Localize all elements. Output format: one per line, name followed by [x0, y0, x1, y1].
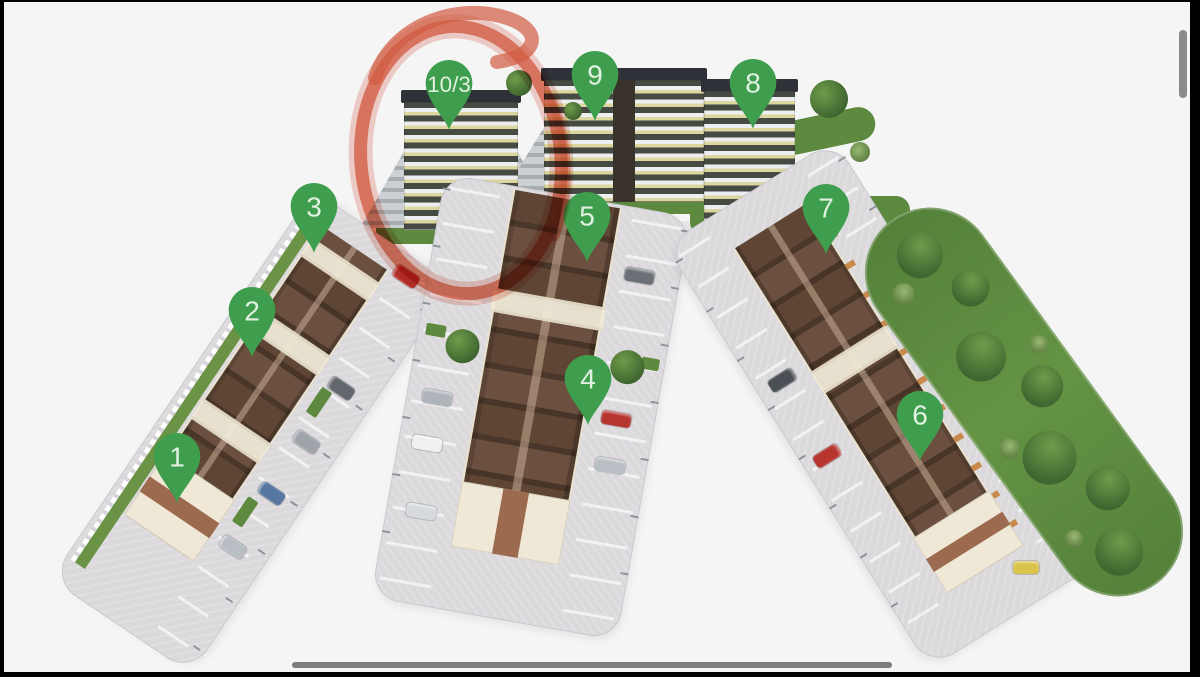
bush	[1026, 332, 1051, 357]
tree	[888, 223, 952, 287]
tree	[506, 70, 532, 96]
video-frame: 1 2 3 4 5 6 7 8 9 10/3	[0, 0, 1200, 677]
svg-text:8: 8	[745, 68, 761, 99]
map-pin-7[interactable]: 7	[798, 182, 854, 257]
tree	[1077, 458, 1138, 519]
svg-text:9: 9	[587, 60, 603, 91]
tree	[1086, 518, 1153, 585]
brick-column	[492, 488, 529, 558]
bush	[850, 142, 870, 162]
tree	[1012, 420, 1087, 495]
svg-text:5: 5	[579, 201, 595, 232]
svg-text:7: 7	[818, 193, 834, 224]
terrace-structure	[360, 148, 406, 228]
tree	[1013, 357, 1072, 416]
svg-text:3: 3	[306, 192, 322, 223]
map-pin-9[interactable]: 9	[567, 49, 623, 124]
svg-text:1: 1	[169, 442, 185, 473]
bush	[1061, 526, 1086, 551]
map-pin-5[interactable]: 5	[559, 190, 615, 265]
site-plan: 1 2 3 4 5 6 7 8 9 10/3	[4, 2, 1190, 672]
bush	[996, 434, 1024, 462]
map-pin-10-3[interactable]: 10/3	[421, 58, 477, 133]
map-pin-4[interactable]: 4	[560, 353, 616, 428]
map-pin-8[interactable]: 8	[725, 57, 781, 132]
horizontal-scrollbar-thumb[interactable]	[292, 662, 892, 668]
map-pin-6[interactable]: 6	[892, 389, 948, 464]
tower-9	[541, 68, 707, 202]
bush	[888, 279, 919, 310]
map-pin-2[interactable]: 2	[224, 285, 280, 360]
vertical-scrollbar-thumb[interactable]	[1179, 30, 1187, 98]
svg-text:10/3: 10/3	[427, 72, 471, 97]
tree	[946, 322, 1016, 392]
svg-text:4: 4	[580, 364, 596, 395]
tree	[810, 80, 848, 118]
car	[1013, 561, 1039, 574]
svg-text:2: 2	[244, 296, 260, 327]
map-pin-1[interactable]: 1	[149, 431, 205, 506]
svg-text:6: 6	[912, 400, 928, 431]
tree	[944, 261, 997, 314]
map-pin-3[interactable]: 3	[286, 181, 342, 256]
